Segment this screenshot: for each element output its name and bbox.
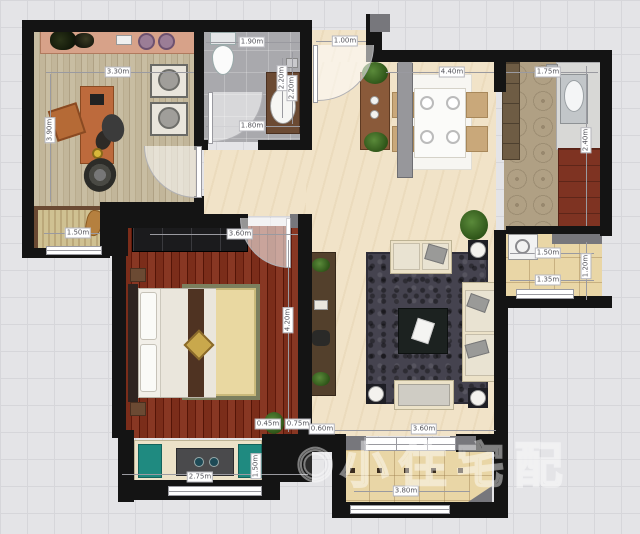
dim-label: 3.80m — [393, 486, 419, 497]
dim-label: 3.90m — [45, 117, 56, 143]
dim-label: 2.20m — [287, 75, 298, 101]
dimension-line — [150, 234, 298, 235]
plate — [446, 130, 460, 144]
dining-chair — [466, 92, 488, 118]
tv-cabinet-plant — [312, 372, 330, 386]
dresser-knob — [209, 457, 219, 467]
floor-plan: 3.30m 3.90m 1.90m 2.20m 1.80m 1.00m 4.40… — [0, 0, 640, 534]
door-jamb — [346, 436, 366, 450]
sofa-cushion — [393, 243, 420, 270]
bed-headboard — [128, 284, 138, 402]
dimension-line — [386, 72, 598, 73]
wall-segment — [506, 226, 602, 234]
shelf-bowl — [158, 33, 175, 50]
dim-label: 3.60m — [227, 229, 253, 240]
dining-chair — [466, 126, 488, 152]
dim-label: 1.35m — [535, 275, 561, 286]
dim-label: 3.30m — [105, 67, 131, 78]
pillow — [140, 344, 157, 392]
dim-label: 0.75m — [285, 419, 311, 430]
shelf-plant — [50, 30, 76, 50]
balcony-dot — [377, 468, 382, 473]
dim-label: 0.60m — [309, 424, 335, 435]
nightstand — [130, 268, 146, 282]
shelf-box — [116, 35, 132, 45]
dim-label: 1.80m — [239, 121, 265, 132]
dim-label: 2.40m — [581, 127, 592, 153]
side-table — [366, 384, 386, 404]
wall-segment — [22, 20, 312, 32]
shelf-bowl — [138, 33, 155, 50]
wall-segment — [112, 214, 248, 228]
dim-label: 1.50m — [251, 453, 262, 479]
kitchen-stove-cabinet — [558, 148, 602, 230]
sofa-bench-cushion — [398, 384, 450, 406]
balcony-dot — [431, 468, 436, 473]
dim-label: 4.20m — [283, 307, 294, 333]
wall-segment — [494, 56, 506, 92]
pillow — [140, 292, 157, 340]
dim-label: 1.50m — [65, 228, 91, 239]
side-table — [468, 388, 488, 408]
dim-label: 3.60m — [411, 424, 437, 435]
plate — [446, 96, 460, 110]
nightstand — [130, 402, 146, 416]
wall-segment — [370, 14, 390, 32]
console-decor — [370, 110, 379, 119]
washing-machine-door — [515, 239, 530, 254]
wall-segment — [298, 214, 312, 440]
hallway-floor — [204, 150, 308, 216]
dimension-line — [122, 474, 308, 475]
wall-segment — [300, 20, 312, 150]
wall-segment — [194, 196, 204, 216]
dim-label: 1.50m — [535, 248, 561, 259]
wall-segment — [112, 214, 126, 438]
wall-segment — [194, 20, 204, 148]
kitchen-sliding-door — [397, 56, 413, 178]
plate — [420, 130, 434, 144]
wall-segment — [494, 306, 508, 516]
south-balcony-floor — [344, 450, 492, 506]
wall-segment — [22, 20, 34, 210]
window — [350, 505, 450, 514]
shelf-plant — [74, 33, 94, 48]
window — [516, 289, 574, 299]
dim-label: 2.75m — [187, 472, 213, 483]
wall-segment — [600, 50, 612, 236]
dresser-knob — [194, 457, 204, 467]
kitchen-sink-basin — [564, 80, 584, 112]
window — [46, 246, 102, 255]
console-plant — [364, 132, 388, 152]
toilet-tank — [210, 32, 236, 45]
dim-label: 1.20m — [581, 253, 592, 279]
dim-label: 2.20m — [277, 65, 288, 91]
side-table — [468, 240, 488, 260]
tv-cabinet-plant — [312, 258, 330, 272]
lounge-chair-cushion — [158, 107, 180, 129]
plate — [420, 96, 434, 110]
window — [168, 486, 262, 496]
dimension-line — [288, 240, 289, 432]
dim-label: 1.75m — [535, 67, 561, 78]
console-decor — [370, 96, 379, 105]
balcony-sliding-door — [364, 437, 456, 451]
dim-label: 4.40m — [439, 67, 465, 78]
desk-laptop — [90, 94, 104, 105]
dim-label: 0.45m — [255, 419, 281, 430]
study-door-leaf — [196, 146, 202, 198]
balcony-dot — [404, 468, 409, 473]
tv-cabinet-decor — [314, 300, 328, 310]
living-plant — [460, 210, 488, 240]
dimension-line — [310, 430, 496, 431]
dim-label: 1.90m — [239, 37, 265, 48]
balcony-dot — [458, 468, 463, 473]
tv-cabinet-decor — [312, 330, 330, 346]
bench-cushion-teal — [138, 444, 162, 478]
balcony-dot — [350, 468, 355, 473]
dim-label: 1.00m — [332, 36, 358, 47]
